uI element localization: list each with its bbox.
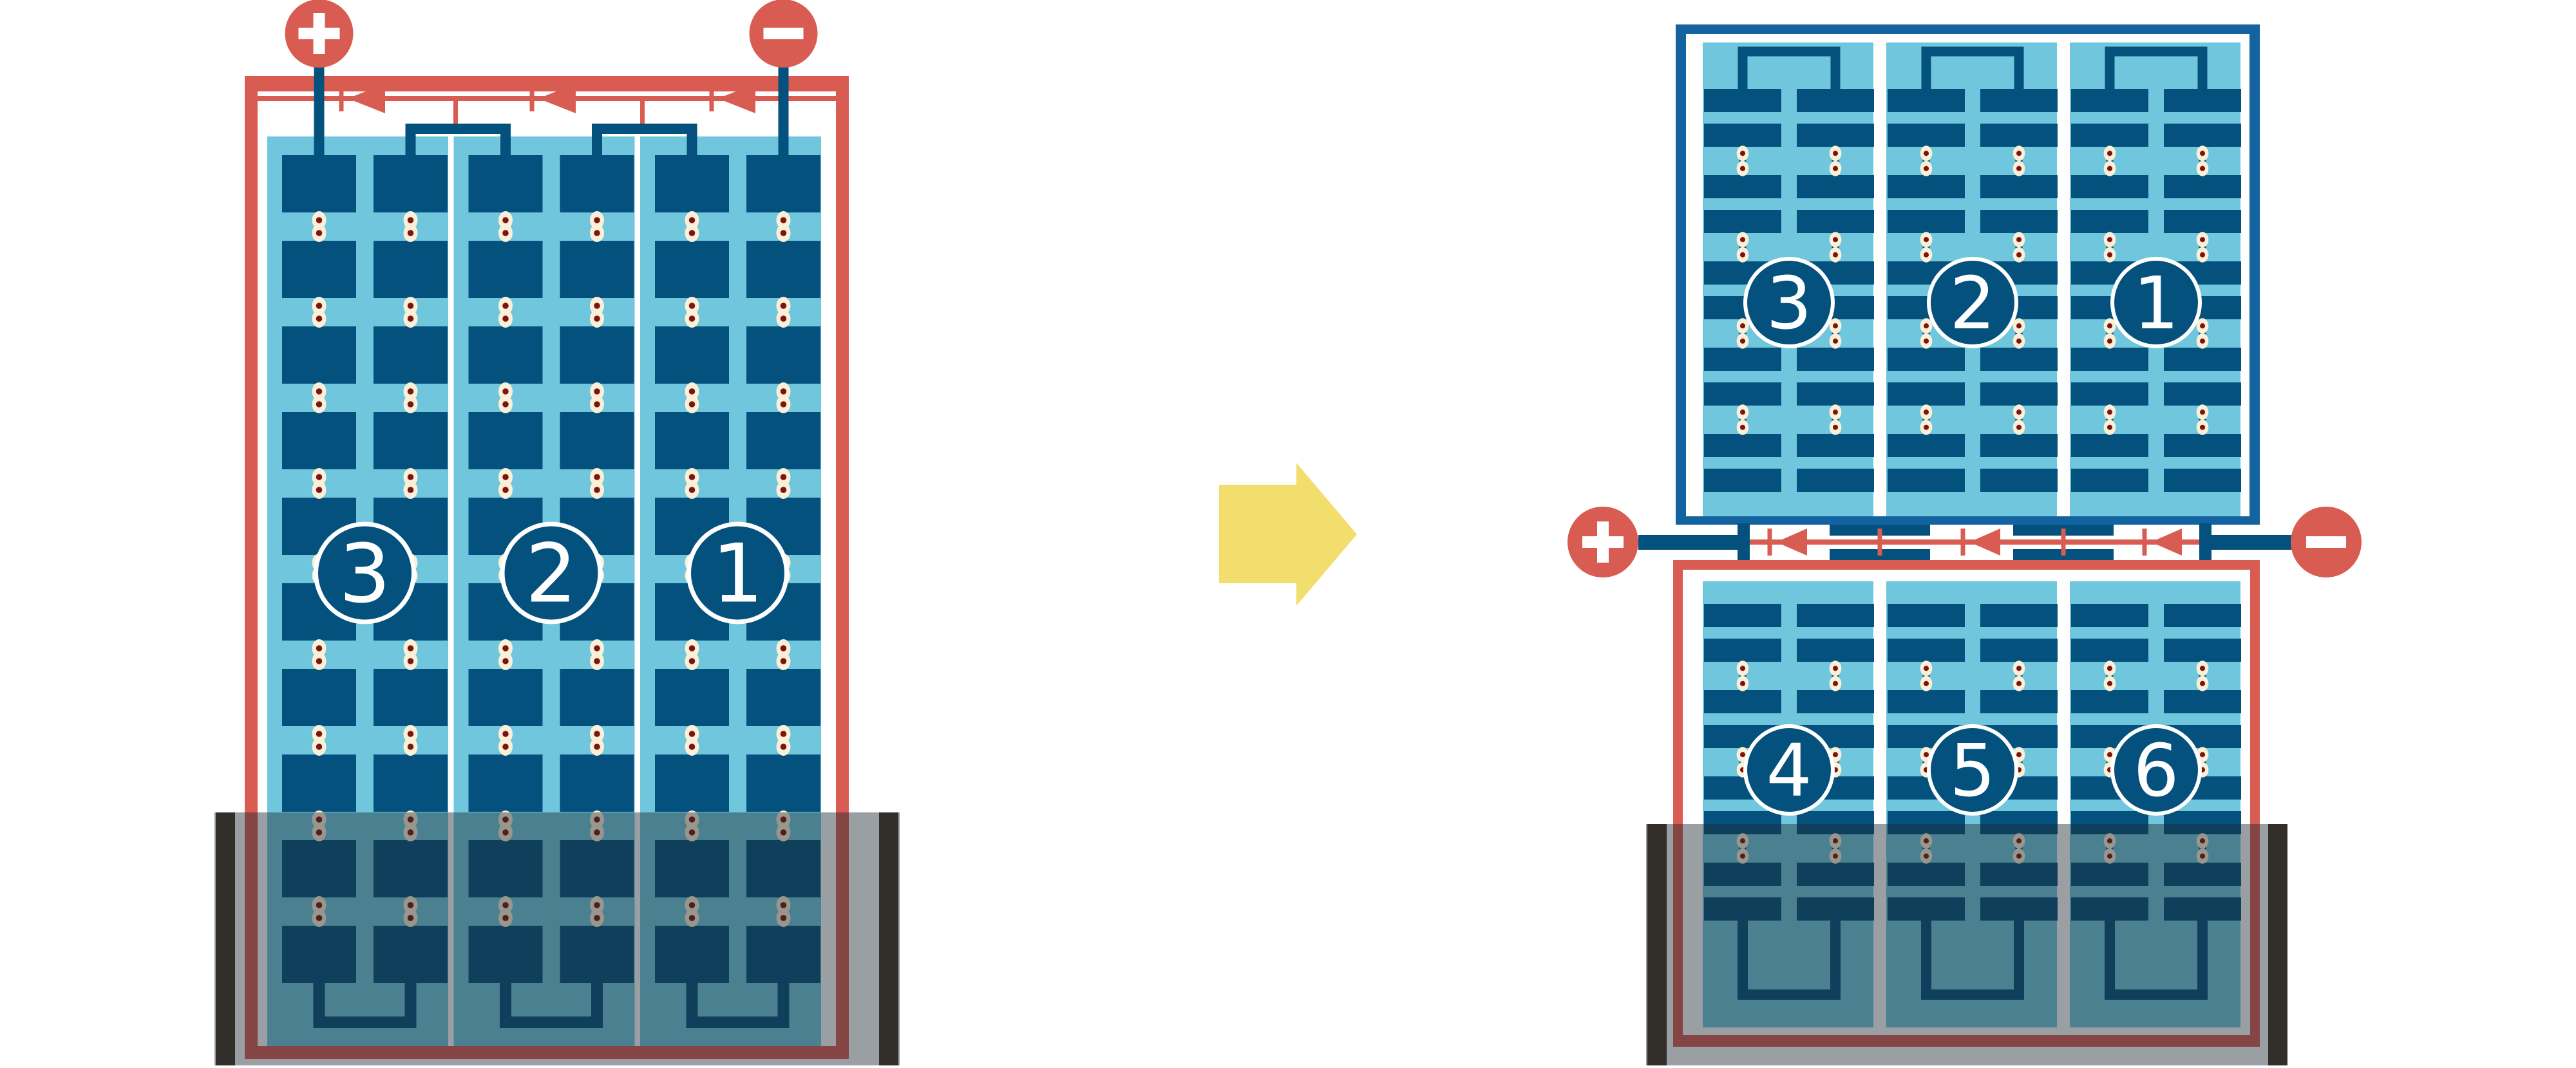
solder-dot [1833,237,1838,242]
solar-cell [1980,604,2058,627]
solar-cell [655,241,729,298]
solder-dot [502,645,509,651]
solar-cell [1797,639,1874,662]
solder-dot [2016,409,2022,415]
solar-cell [2071,124,2148,147]
solar-cell [2071,690,2148,713]
transform-arrow-icon [1219,463,1357,606]
solar-cell [374,754,448,812]
solder-dot [2107,151,2112,156]
solar-cell [1888,469,1965,492]
solder-dot [408,731,414,737]
solar-cell [1704,382,1781,406]
solder-dot [1833,166,1838,171]
diode-cathode-bar [1961,529,1965,556]
solar-cell [1888,382,1965,406]
solder-dot [316,487,323,493]
solder-dot [689,487,696,493]
solar-cell [1797,175,1874,198]
solder-dot [1740,666,1745,671]
solar-cell [469,241,543,298]
string-number-badge: 3 [1745,259,1833,346]
flood-overlays [214,812,2287,1065]
solar-cell [1888,175,1965,198]
solder-dot [2016,681,2022,686]
string-number-badge: 4 [1745,726,1833,814]
diode-bus-stub [453,98,458,124]
diode-bus-tick [1878,529,1882,556]
solder-dot [316,731,323,737]
solar-cell [1980,175,2058,198]
solder-dot [1740,323,1745,328]
solar-cell [1980,89,2058,112]
solar-cell [1797,124,1874,147]
solder-dot [2107,409,2112,415]
diode-arrow-icon [1969,529,2000,556]
solder-dot [316,474,323,480]
solder-dot [689,217,696,223]
minus-icon [2306,536,2346,548]
solar-cell [1980,124,2058,147]
negative-terminal [750,0,818,68]
solder-dot [1740,681,1745,686]
solder-dot [408,388,414,395]
solder-dot [1833,323,1838,328]
solder-dot [408,303,414,309]
solar-cell [746,326,820,384]
solder-dot [2016,339,2022,344]
solar-panel-transformation-diagram: 321 321 456 [0,0,2576,1068]
solar-cell [2071,89,2148,112]
solar-cell [374,155,448,212]
junction-side-link [2199,523,2211,560]
solder-dot [408,315,414,322]
solder-dot [2016,666,2022,671]
solar-cell [469,412,543,469]
string-number: 6 [2133,729,2179,813]
solar-cell [2164,382,2241,406]
solder-dot [2107,323,2112,328]
frame-bottom-bus [1676,516,2260,525]
solder-dot [316,744,323,750]
solder-dot [781,744,787,750]
solar-cell [469,754,543,812]
solder-dot [594,645,600,651]
arrow-head [1296,463,1357,606]
solar-cell [655,754,729,812]
string-number-badge: 3 [316,524,414,622]
solar-cell [1888,348,1965,371]
solar-cell [2071,382,2148,406]
solder-dot [316,645,323,651]
solar-cell [655,326,729,384]
solar-cell [282,326,356,384]
solar-cell [1888,604,1965,627]
diode-cathode-bar [339,86,344,111]
solar-cell [1797,382,1874,406]
solder-dot [1740,425,1745,430]
solar-cell [1704,210,1781,233]
plus-icon [1597,521,1609,563]
solder-dot [781,303,787,309]
positive-terminal [285,0,354,68]
solar-cell [2164,604,2241,627]
solder-dot [502,401,509,408]
solar-cell [746,155,820,212]
diode-arrow-icon [2151,529,2182,556]
solar-cell [282,754,356,812]
solar-cell [1888,434,1965,457]
solder-dot [689,474,696,480]
solder-dot [502,303,509,309]
solar-cell [1704,469,1781,492]
solder-dot [781,388,787,395]
solar-cell [560,669,634,726]
string-number: 2 [526,527,577,621]
solder-dot [594,230,600,236]
solder-dot [316,315,323,322]
solder-dot [1833,252,1838,258]
solder-dot [2200,425,2205,430]
solar-cell [1797,604,1874,627]
solar-cell [1888,124,1965,147]
solar-cell [2071,469,2148,492]
frame-top-bus [1673,560,2260,570]
solar-cell [1704,434,1781,457]
diode-cathode-bar [710,86,714,111]
solder-dot [1740,752,1745,757]
solar-cell [655,412,729,469]
string-number: 2 [1949,262,1995,346]
solar-cell [1980,639,2058,662]
solar-cell [282,412,356,469]
solder-dot [781,230,787,236]
string-number: 1 [2133,262,2179,346]
solar-cell [282,241,356,298]
diode-bus-stub [640,98,645,124]
solar-cell [1704,690,1781,713]
solder-dot [594,744,600,750]
solar-cell [282,155,356,212]
solder-dot [781,315,787,322]
solder-dot [316,388,323,395]
solder-dot [502,744,509,750]
diagram-stage: 321 321 456 [0,0,2576,1068]
solder-dot [781,731,787,737]
solder-dot [2016,425,2022,430]
solar-cell [1980,469,2058,492]
solar-cell [2164,348,2241,371]
solder-dot [1740,252,1745,258]
solder-dot [2107,666,2112,671]
solder-dot [2200,752,2205,757]
solder-dot [502,388,509,395]
solder-dot [1833,151,1838,156]
frame-top [1676,24,2260,34]
string-number-badge: 1 [689,524,787,622]
solder-dot [1740,166,1745,171]
solar-cell [1888,210,1965,233]
negative-terminal [2291,507,2362,577]
minus-icon [764,28,804,39]
solar-cell [374,241,448,298]
solder-dot [781,658,787,664]
solder-dot [2200,252,2205,258]
solder-dot [316,658,323,664]
solder-dot [689,731,696,737]
string-number-badge: 2 [502,524,600,622]
solder-dot [781,217,787,223]
solder-dot [1833,425,1838,430]
solder-dot [1924,339,1929,344]
solar-cell [1704,124,1781,147]
solar-cell [1980,434,2058,457]
solar-cell [2071,639,2148,662]
solder-dot [594,217,600,223]
solar-cell [560,155,634,212]
solder-dot [1833,681,1838,686]
solder-dot [316,230,323,236]
solder-dot [1833,752,1838,757]
solar-cell [1980,348,2058,371]
solder-dot [502,315,509,322]
solder-dot [689,744,696,750]
solder-dot [689,401,696,408]
solder-dot [1740,409,1745,415]
string-number: 3 [1766,262,1812,346]
diode-cathode-bar [1768,529,1772,556]
solder-dot [2200,666,2205,671]
solder-dot [1924,237,1929,242]
solder-dot [1740,339,1745,344]
solar-cell [2071,175,2148,198]
solder-dot [594,315,600,322]
solar-cell [1797,434,1874,457]
flood-edge-bar [1647,824,1667,1065]
solar-cell [1797,210,1874,233]
solder-dot [689,658,696,664]
solder-dot [1924,323,1929,328]
diode-bus-tick [2061,529,2066,556]
solar-cell [655,669,729,726]
solder-dot [2107,166,2112,171]
solder-dot [781,474,787,480]
solar-cell [1888,89,1965,112]
solder-dot [316,217,323,223]
solder-dot [1833,339,1838,344]
flood-water-left [214,812,900,1065]
solar-cell [2071,434,2148,457]
solder-dot [408,645,414,651]
solder-dot [689,303,696,309]
flood-edge-bar [216,812,235,1065]
solder-dot [2200,681,2205,686]
solder-dot [2016,323,2022,328]
solar-cell [1704,604,1781,627]
solar-cell [1980,690,2058,713]
solar-cell [374,326,448,384]
solar-cell [1797,89,1874,112]
frame-right [2249,24,2260,525]
solar-cell [2164,124,2241,147]
solder-dot [2016,237,2022,242]
frame-left [1676,24,1686,525]
solar-cell [746,412,820,469]
solar-cell [2164,210,2241,233]
solder-dot [502,658,509,664]
solder-dot [1924,252,1929,258]
solder-dot [408,217,414,223]
solar-cell [469,155,543,212]
solar-cell [469,326,543,384]
solder-dot [594,388,600,395]
solder-dot [2200,409,2205,415]
solder-dot [781,401,787,408]
flood-edge-bar [2268,824,2287,1065]
solar-cell [560,326,634,384]
solder-dot [2200,166,2205,171]
solar-cell [560,241,634,298]
solder-dot [2200,339,2205,344]
solar-cell [2071,348,2148,371]
solar-cell [1797,469,1874,492]
solder-dot [1924,681,1929,686]
solder-dot [2107,252,2112,258]
solar-cell [2071,210,2148,233]
solder-dot [1833,409,1838,415]
solar-cell [374,669,448,726]
solar-cell [1704,175,1781,198]
solar-cell [2164,434,2241,457]
solder-dot [1924,151,1929,156]
solar-cell [2071,604,2148,627]
solder-dot [1924,752,1929,757]
solar-cell [374,412,448,469]
solder-dot [689,315,696,322]
solar-cell [2164,469,2241,492]
solar-cell [2164,89,2241,112]
string-number: 4 [1766,729,1812,813]
solar-cell [1888,639,1965,662]
solder-dot [502,731,509,737]
solder-dot [2200,237,2205,242]
solder-dot [689,645,696,651]
frame-top-bar [245,76,849,91]
solder-dot [2107,425,2112,430]
solar-cell [746,754,820,812]
solar-cell [2164,639,2241,662]
solder-dot [594,474,600,480]
diode-arrow-icon [1776,529,1807,556]
solder-dot [781,487,787,493]
solder-dot [2200,151,2205,156]
solder-dot [594,658,600,664]
solar-cell [1980,382,2058,406]
solder-dot [1924,409,1929,415]
solder-dot [1740,237,1745,242]
solder-dot [502,217,509,223]
diode-cathode-bar [530,86,535,111]
solder-dot [408,744,414,750]
solar-cell [655,155,729,212]
solder-dot [502,230,509,236]
solar-cell [469,669,543,726]
solder-dot [408,401,414,408]
solder-dot [2107,752,2112,757]
plus-icon [314,13,325,54]
solar-cell [2164,690,2241,713]
solder-dot [1833,666,1838,671]
solder-dot [594,401,600,408]
solder-dot [689,388,696,395]
solder-dot [408,474,414,480]
string-number: 5 [1949,729,1995,813]
string-separator [2057,42,2070,516]
solar-cell [1704,639,1781,662]
string-number-badge: 1 [2112,259,2200,346]
solar-cell [1704,89,1781,112]
solder-dot [1924,166,1929,171]
solder-dot [594,487,600,493]
solder-dot [2107,237,2112,242]
solder-dot [2107,681,2112,686]
junction-side-link [1738,523,1750,560]
positive-lead-wire [1638,535,1739,550]
arrow-shaft [1219,485,1296,583]
flood-edge-bar [879,812,898,1065]
solar-cell [282,669,356,726]
solder-dot [594,303,600,309]
solder-dot [502,487,509,493]
solar-cell [2164,175,2241,198]
solder-dot [408,658,414,664]
solder-dot [781,645,787,651]
solar-cell [1980,210,2058,233]
solder-dot [2107,339,2112,344]
solder-dot [408,487,414,493]
solar-cell [1797,690,1874,713]
string-number-badge: 2 [1929,259,2016,346]
solar-cell [1704,348,1781,371]
solder-dot [1740,151,1745,156]
solar-cell [1797,348,1874,371]
diode-cathode-bar [2143,529,2147,556]
solder-dot [2016,252,2022,258]
solder-dot [689,230,696,236]
solar-cell [746,669,820,726]
solder-dot [408,230,414,236]
solder-dot [2016,752,2022,757]
solar-cell [560,754,634,812]
solder-dot [316,303,323,309]
negative-lead-wire [2210,535,2293,550]
solder-dot [2016,151,2022,156]
string-number-badge: 5 [1929,726,2016,814]
string-number-badge: 6 [2112,726,2200,814]
string-number: 1 [712,527,763,621]
solder-dot [502,474,509,480]
solar-cell [1888,690,1965,713]
solar-cell [746,241,820,298]
string-number: 3 [339,527,390,621]
flood-water-right [1646,824,2287,1065]
solar-cell [560,412,634,469]
solder-dot [1924,425,1929,430]
right-top-panel: 321 [1676,24,2260,525]
solder-dot [594,731,600,737]
solder-dot [316,401,323,408]
solder-dot [2200,323,2205,328]
